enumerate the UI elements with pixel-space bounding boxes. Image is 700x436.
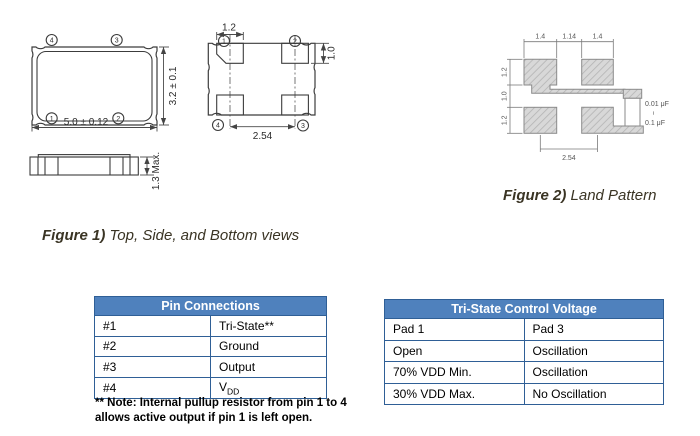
pin1-marker-bottom: 1 xyxy=(219,36,230,47)
pin3-marker-bottom: 3 xyxy=(298,120,309,131)
pin-table-note: ** Note: Internal pullup resistor from p… xyxy=(95,396,355,425)
capacitor-max-value: 0.1 μF xyxy=(645,120,665,127)
tristate-control-table: Tri-State Control Voltage Pad 1 Pad 3 Op… xyxy=(384,299,664,405)
top-view: 4 3 1 2 5.0 ± 0.12 3.2 ± 0.1 xyxy=(32,35,179,132)
side-view: 1.3 Max. xyxy=(30,152,162,190)
pin-number-cell: #2 xyxy=(95,336,211,357)
pin1-number-bottom: 1 xyxy=(222,39,226,46)
figure1-drawing: 4 3 1 2 5.0 ± 0.12 3.2 ± 0.1 xyxy=(20,8,350,208)
lp-dim-pad-width-right: 1.4 xyxy=(593,34,603,41)
lp-top-dimensions: 1.4 1.14 1.4 xyxy=(524,34,613,59)
figure2-caption-text: Land Pattern xyxy=(571,187,657,204)
table-row: #1 Tri-State** xyxy=(95,316,327,337)
pin-number-cell: #3 xyxy=(95,357,211,378)
pitch-label: 2.54 xyxy=(253,131,273,142)
figure1-caption-text: Top, Side, and Bottom views xyxy=(110,227,300,244)
pin-connections-table: Pin Connections #1 Tri-State** #2 Ground… xyxy=(94,296,327,399)
pad-width-label: 1.2 xyxy=(222,23,236,34)
capacitor-tilde: ~ xyxy=(649,111,656,115)
lp-dim-pitch: 2.54 xyxy=(562,155,576,162)
table-row: #2 Ground xyxy=(95,336,327,357)
pin-number-cell: #1 xyxy=(95,316,211,337)
capacitor-symbol xyxy=(623,89,641,126)
pad3-cell: Oscillation xyxy=(524,362,664,384)
pin-function-cell: Ground xyxy=(211,336,327,357)
pin2-number: 2 xyxy=(116,116,120,123)
pitch-dimension: 2.54 xyxy=(230,127,295,142)
figure2-caption-number: Figure 2) xyxy=(503,187,566,204)
width-dim-label: 5.0 ± 0.12 xyxy=(64,117,109,128)
pin-table-title: Pin Connections xyxy=(95,297,327,316)
table-row: 70% VDD Min. Oscillation xyxy=(385,362,664,384)
thickness-dim-label: 1.3 Max. xyxy=(151,152,162,190)
table-row: Open Oscillation xyxy=(385,340,664,362)
pin3-number: 3 xyxy=(115,38,119,45)
figure1-caption-number: Figure 1) xyxy=(42,227,105,244)
pad3-cell: No Oscillation xyxy=(524,383,664,405)
pin3-number-bottom: 3 xyxy=(301,123,305,130)
pin4-marker: 4 xyxy=(46,35,57,46)
capacitor-min-value: 0.01 μF xyxy=(645,101,669,108)
pin4-number: 4 xyxy=(50,38,54,45)
figure2-drawing: 1.4 1.14 1.4 1.2 1.0 1.2 2.54 0.01 μF ~ … xyxy=(485,15,700,170)
height-dimension: 3.2 ± 0.1 xyxy=(159,47,179,125)
vdd-subscript: DD xyxy=(227,386,239,396)
pad1-cell: 30% VDD Max. xyxy=(385,383,525,405)
pin4-marker-bottom: 4 xyxy=(213,120,224,131)
pad1-cell: 70% VDD Min. xyxy=(385,362,525,384)
pad3-cell: Oscillation xyxy=(524,340,664,362)
lp-left-dimensions: 1.2 1.0 1.2 xyxy=(502,59,523,133)
land-pad2 xyxy=(582,59,614,85)
lp-dim-gap: 1.14 xyxy=(562,34,576,41)
note-line2: allows active output if pin 1 is left op… xyxy=(95,411,355,426)
pad1-cell: Open xyxy=(385,340,525,362)
figure2-caption: Figure 2) Land Pattern xyxy=(503,187,656,204)
pin4-number-bottom: 4 xyxy=(216,123,220,130)
lp-dim-row-gap: 1.0 xyxy=(502,91,509,101)
pad-height-label: 1.0 xyxy=(327,46,338,60)
pin1-number: 1 xyxy=(50,116,54,123)
height-dim-label: 3.2 ± 0.1 xyxy=(168,66,179,105)
capacitor-value-note: 0.01 μF ~ 0.1 μF xyxy=(645,101,669,127)
datasheet-page: { "figure1": { "caption": {"bold": "Figu… xyxy=(0,0,700,436)
pin-function-cell: Output xyxy=(211,357,327,378)
table-row: Pad 1 Pad 3 xyxy=(385,319,664,341)
table-header-row: Tri-State Control Voltage xyxy=(385,300,664,319)
thickness-dimension: 1.3 Max. xyxy=(140,152,162,190)
table-header-row: Pin Connections xyxy=(95,297,327,316)
pin2-number-bottom: 2 xyxy=(293,39,297,46)
lp-pitch-dimension: 2.54 xyxy=(540,135,597,162)
lp-dim-pad-height-top: 1.2 xyxy=(502,67,509,77)
table-row: 30% VDD Max. No Oscillation xyxy=(385,383,664,405)
note-line1: ** Note: Internal pullup resistor from p… xyxy=(95,396,355,411)
tristate-table-title: Tri-State Control Voltage xyxy=(385,300,664,319)
vdd-main: V xyxy=(219,380,227,394)
land-pattern xyxy=(524,59,643,133)
land-pad4 xyxy=(524,107,557,133)
figure1-caption: Figure 1) Top, Side, and Bottom views xyxy=(42,227,299,244)
lp-dim-pad-width-left: 1.4 xyxy=(535,34,545,41)
bottom-view: 1 2 4 3 1.2 1.0 2.5 xyxy=(208,23,337,143)
pin-function-cell: Tri-State** xyxy=(211,316,327,337)
pad3-cell: Pad 3 xyxy=(524,319,664,341)
lp-dim-pad-height-bottom: 1.2 xyxy=(502,115,509,125)
table-row: #3 Output xyxy=(95,357,327,378)
pin3-marker: 3 xyxy=(111,35,122,46)
pad1-cell: Pad 1 xyxy=(385,319,525,341)
